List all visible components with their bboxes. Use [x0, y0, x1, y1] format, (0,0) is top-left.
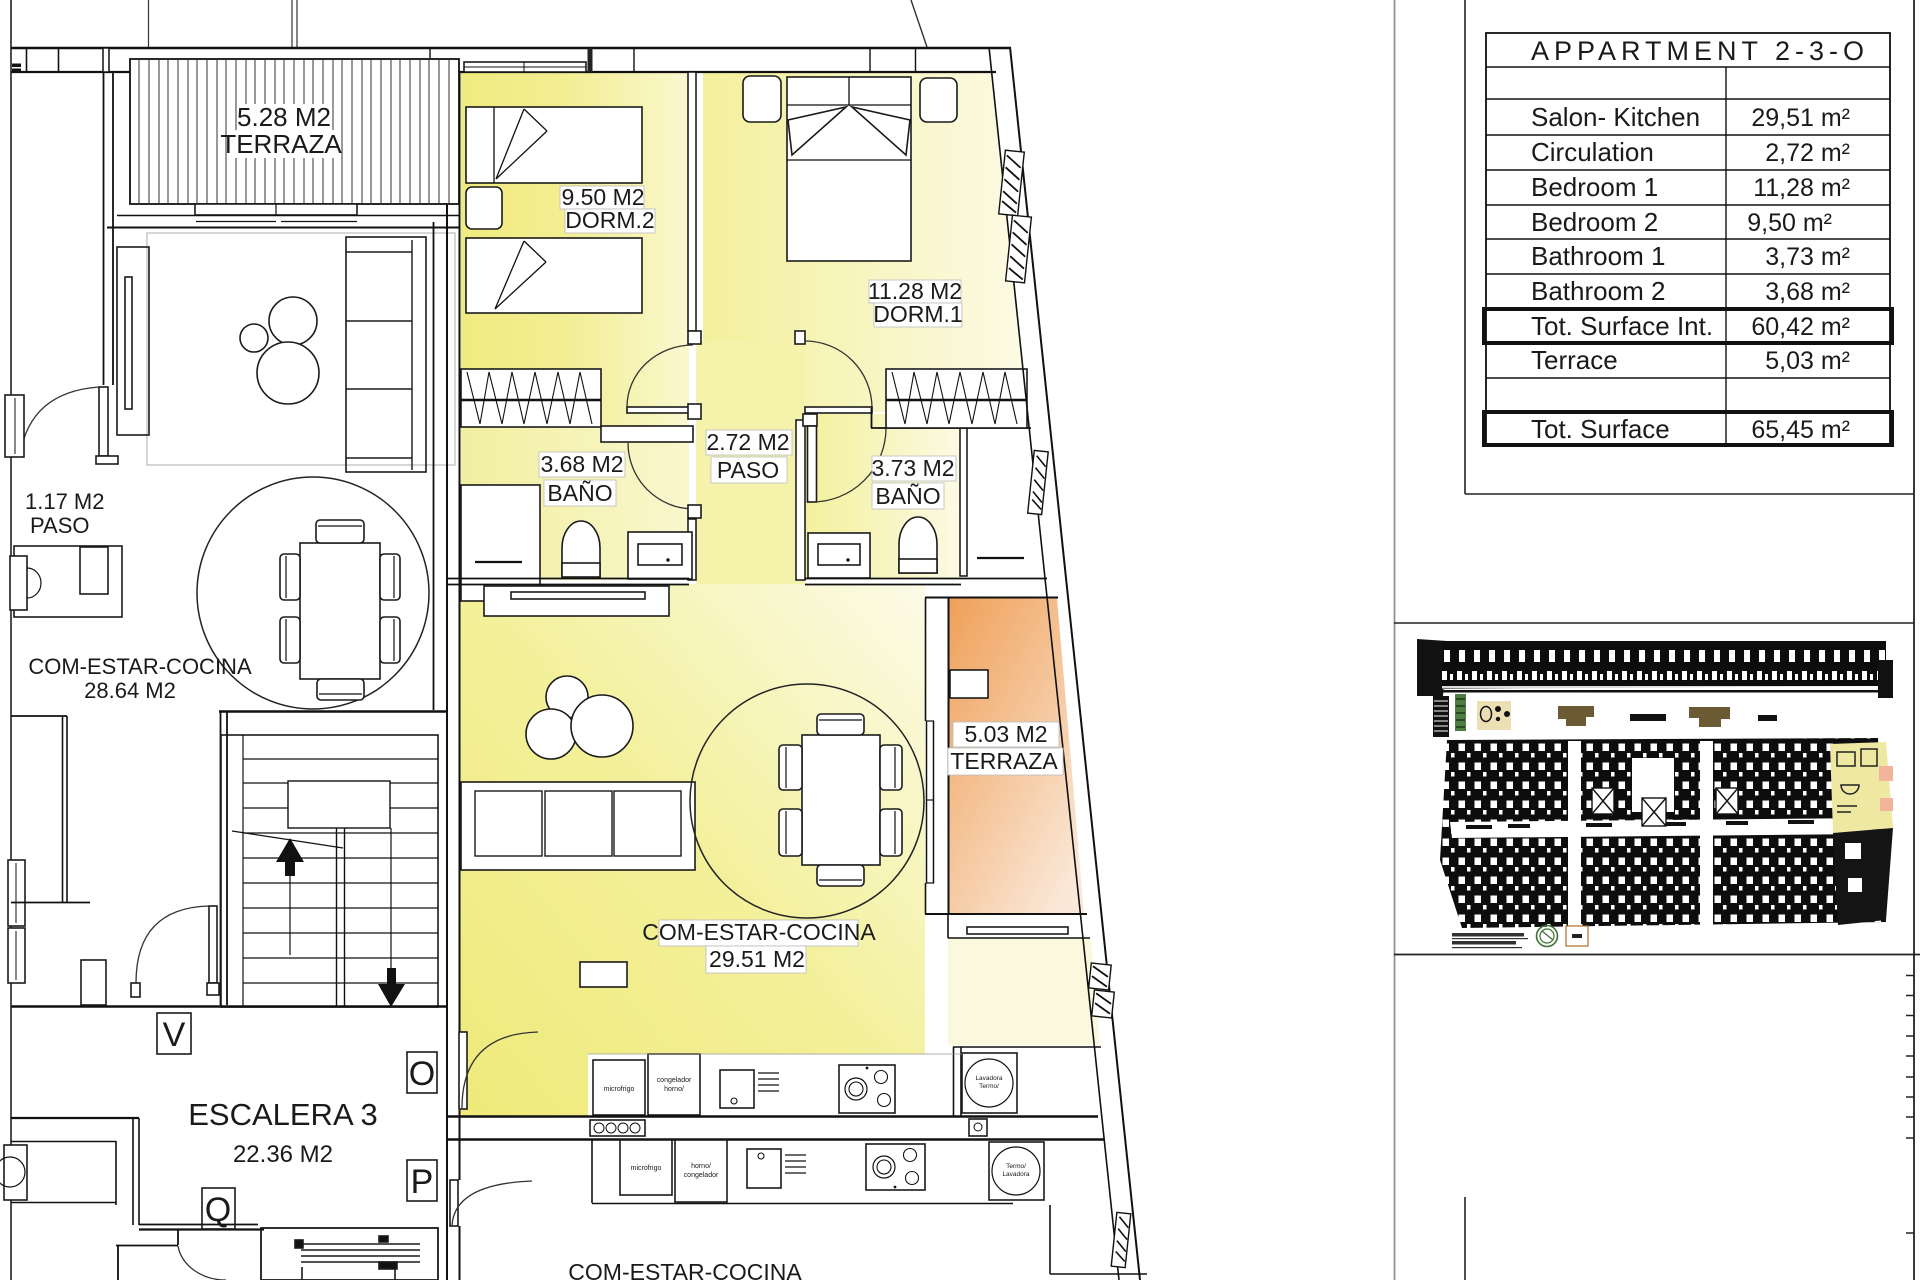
- svg-text:ESCALERA 3: ESCALERA 3: [188, 1097, 378, 1132]
- svg-text:29.51 M2: 29.51 M2: [709, 946, 805, 972]
- svg-text:Termo/: Termo/: [1006, 1163, 1026, 1170]
- svg-text:horno/: horno/: [664, 1086, 684, 1093]
- svg-text:TERRAZA: TERRAZA: [950, 748, 1058, 774]
- svg-text:PASO: PASO: [717, 457, 779, 483]
- svg-text:65,45 m²: 65,45 m²: [1751, 416, 1850, 444]
- svg-text:Tot. Surface: Tot. Surface: [1531, 414, 1670, 444]
- svg-text:28.64 M2: 28.64 M2: [84, 678, 176, 703]
- svg-text:Lavadora: Lavadora: [1002, 1171, 1029, 1178]
- svg-text:3.73 M2: 3.73 M2: [871, 455, 954, 481]
- svg-text:Lavadora: Lavadora: [975, 1075, 1002, 1082]
- svg-text:Bedroom 1: Bedroom 1: [1531, 172, 1658, 202]
- svg-text:9,50 m²: 9,50 m²: [1747, 209, 1832, 237]
- svg-text:5.28 M2: 5.28 M2: [237, 102, 331, 132]
- svg-text:Tot. Surface Int.: Tot. Surface Int.: [1531, 311, 1713, 341]
- svg-text:3.68 M2: 3.68 M2: [540, 451, 623, 477]
- svg-text:TERRAZA: TERRAZA: [220, 129, 342, 159]
- svg-text:Bedroom 2: Bedroom 2: [1531, 207, 1658, 237]
- svg-text:PASO: PASO: [30, 513, 90, 538]
- svg-text:2.72 M2: 2.72 M2: [706, 429, 789, 455]
- svg-text:29,51 m²: 29,51 m²: [1751, 104, 1850, 132]
- svg-text:Termo/: Termo/: [979, 1083, 999, 1090]
- svg-text:microfrigo: microfrigo: [631, 1165, 662, 1172]
- svg-text:V: V: [163, 1016, 186, 1054]
- svg-text:5,03 m²: 5,03 m²: [1765, 347, 1850, 375]
- svg-text:O: O: [409, 1055, 435, 1093]
- svg-text:Terrace: Terrace: [1531, 345, 1618, 375]
- svg-text:3,73 m²: 3,73 m²: [1765, 243, 1850, 271]
- svg-text:Bathroom 1: Bathroom 1: [1531, 241, 1665, 271]
- svg-text:11,28 m²: 11,28 m²: [1753, 174, 1850, 202]
- svg-text:22.36 M2: 22.36 M2: [233, 1141, 333, 1168]
- svg-text:horno/: horno/: [691, 1163, 711, 1170]
- svg-text:congelador: congelador: [684, 1172, 719, 1179]
- svg-text:APPARTMENT 2-3-O: APPARTMENT 2-3-O: [1531, 36, 1869, 66]
- svg-text:Circulation: Circulation: [1531, 137, 1654, 167]
- svg-text:Salon- Kitchen: Salon- Kitchen: [1531, 102, 1700, 132]
- svg-text:5.03 M2: 5.03 M2: [964, 721, 1047, 747]
- svg-text:3,68 m²: 3,68 m²: [1765, 278, 1850, 306]
- svg-text:microfrigo: microfrigo: [604, 1086, 635, 1093]
- svg-text:BAÑO: BAÑO: [547, 480, 612, 506]
- svg-text:2,72 m²: 2,72 m²: [1765, 139, 1850, 167]
- svg-text:P: P: [411, 1163, 434, 1201]
- svg-text:congelador: congelador: [657, 1077, 692, 1084]
- svg-text:COM-ESTAR-COCINA: COM-ESTAR-COCINA: [28, 654, 252, 679]
- svg-text:COM-ESTAR-COCINA: COM-ESTAR-COCINA: [642, 919, 876, 945]
- svg-text:DORM.2: DORM.2: [565, 207, 654, 233]
- svg-text:60,42 m²: 60,42 m²: [1751, 313, 1850, 341]
- svg-text:1.17 M2: 1.17 M2: [25, 489, 105, 514]
- svg-text:Q: Q: [205, 1191, 231, 1229]
- svg-text:BAÑO: BAÑO: [875, 483, 940, 509]
- svg-text:DORM.1: DORM.1: [873, 301, 962, 327]
- svg-text:Bathroom 2: Bathroom 2: [1531, 276, 1665, 306]
- svg-text:COM-ESTAR-COCINA: COM-ESTAR-COCINA: [568, 1259, 802, 1280]
